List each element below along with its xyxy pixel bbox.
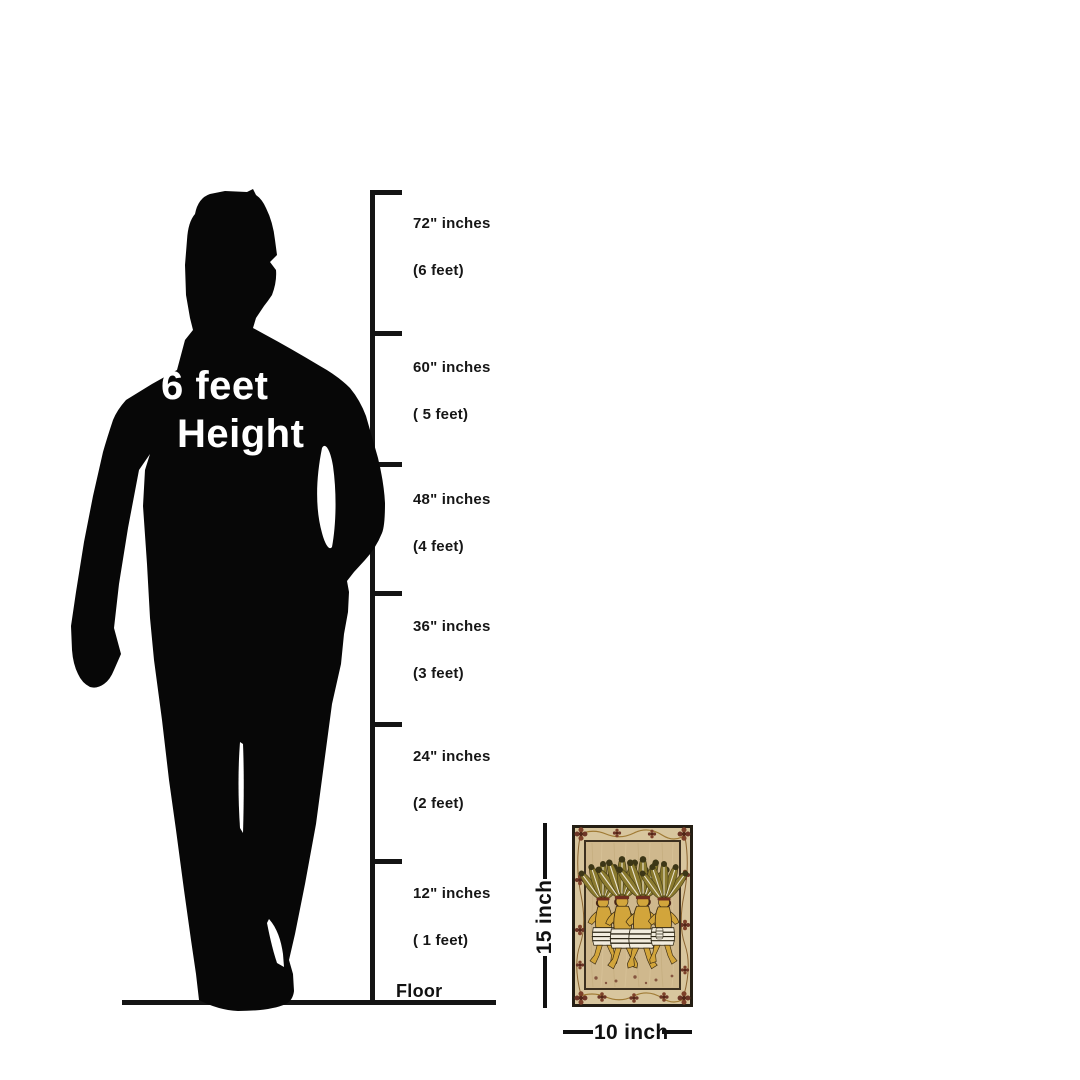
height-overlay-line1: 6 feet [161,366,269,406]
width-dimension-line-left [563,1030,593,1034]
tick-label-inches: 48" inches [413,492,490,508]
height-dimension-line-bottom [543,956,547,1008]
tick-label-36: 36" inches (3 feet) [413,588,490,712]
person-silhouette [60,188,390,1015]
tick-label-feet: (6 feet) [413,263,490,279]
tick-label-inches: 24" inches [413,749,490,765]
tick-label-12: 12" inches ( 1 feet) [413,855,490,979]
tick-label-inches: 72" inches [413,216,490,232]
tick-label-24: 24" inches (2 feet) [413,718,490,842]
artwork-height-label: 15 inch [533,880,557,954]
tick-label-48: 48" inches (4 feet) [413,461,490,585]
height-dimension-line-top [543,823,547,879]
tick-label-inches: 12" inches [413,886,490,902]
tick-label-60: 60" inches ( 5 feet) [413,329,490,453]
tick-label-72: 72" inches (6 feet) [413,185,490,309]
tick-label-inches: 36" inches [413,619,490,635]
tick-label-feet: (2 feet) [413,796,490,812]
tick-label-feet: ( 5 feet) [413,407,490,423]
width-dimension-line-right [662,1030,692,1034]
artwork-width-label: 10 inch [594,1021,660,1045]
tick-label-feet: ( 1 feet) [413,933,490,949]
tick-label-inches: 60" inches [413,360,490,376]
tick-label-feet: (3 feet) [413,666,490,682]
artwork-painting [572,825,693,1007]
height-overlay-line2: Height [177,414,304,454]
size-chart-canvas: 72" inches (6 feet) 60" inches ( 5 feet)… [0,0,1080,1080]
tick-label-feet: (4 feet) [413,539,490,555]
floor-label: Floor [396,981,443,1002]
